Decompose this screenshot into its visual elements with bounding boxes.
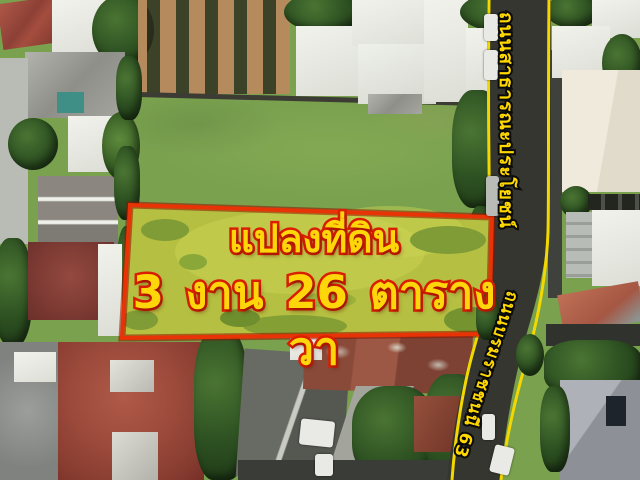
plot-area-label: แปลงที่ดิน 3 งาน 26 ตารางวา: [118, 216, 510, 377]
white-van: [299, 418, 336, 447]
plot-label-line2: 3 งาน 26 ตารางวา: [118, 265, 510, 378]
tree-overhang: [516, 334, 544, 376]
road-label-vertical-text: ถนนสาธารณะประโยชน์: [491, 12, 521, 229]
aerial-photo: ถนนสาธารณะประโยชน์ ถนนบรมราชชนนี 63 แปลง…: [0, 0, 640, 480]
plot-label-line1: แปลงที่ดิน: [118, 216, 510, 265]
white-car: [315, 454, 333, 476]
